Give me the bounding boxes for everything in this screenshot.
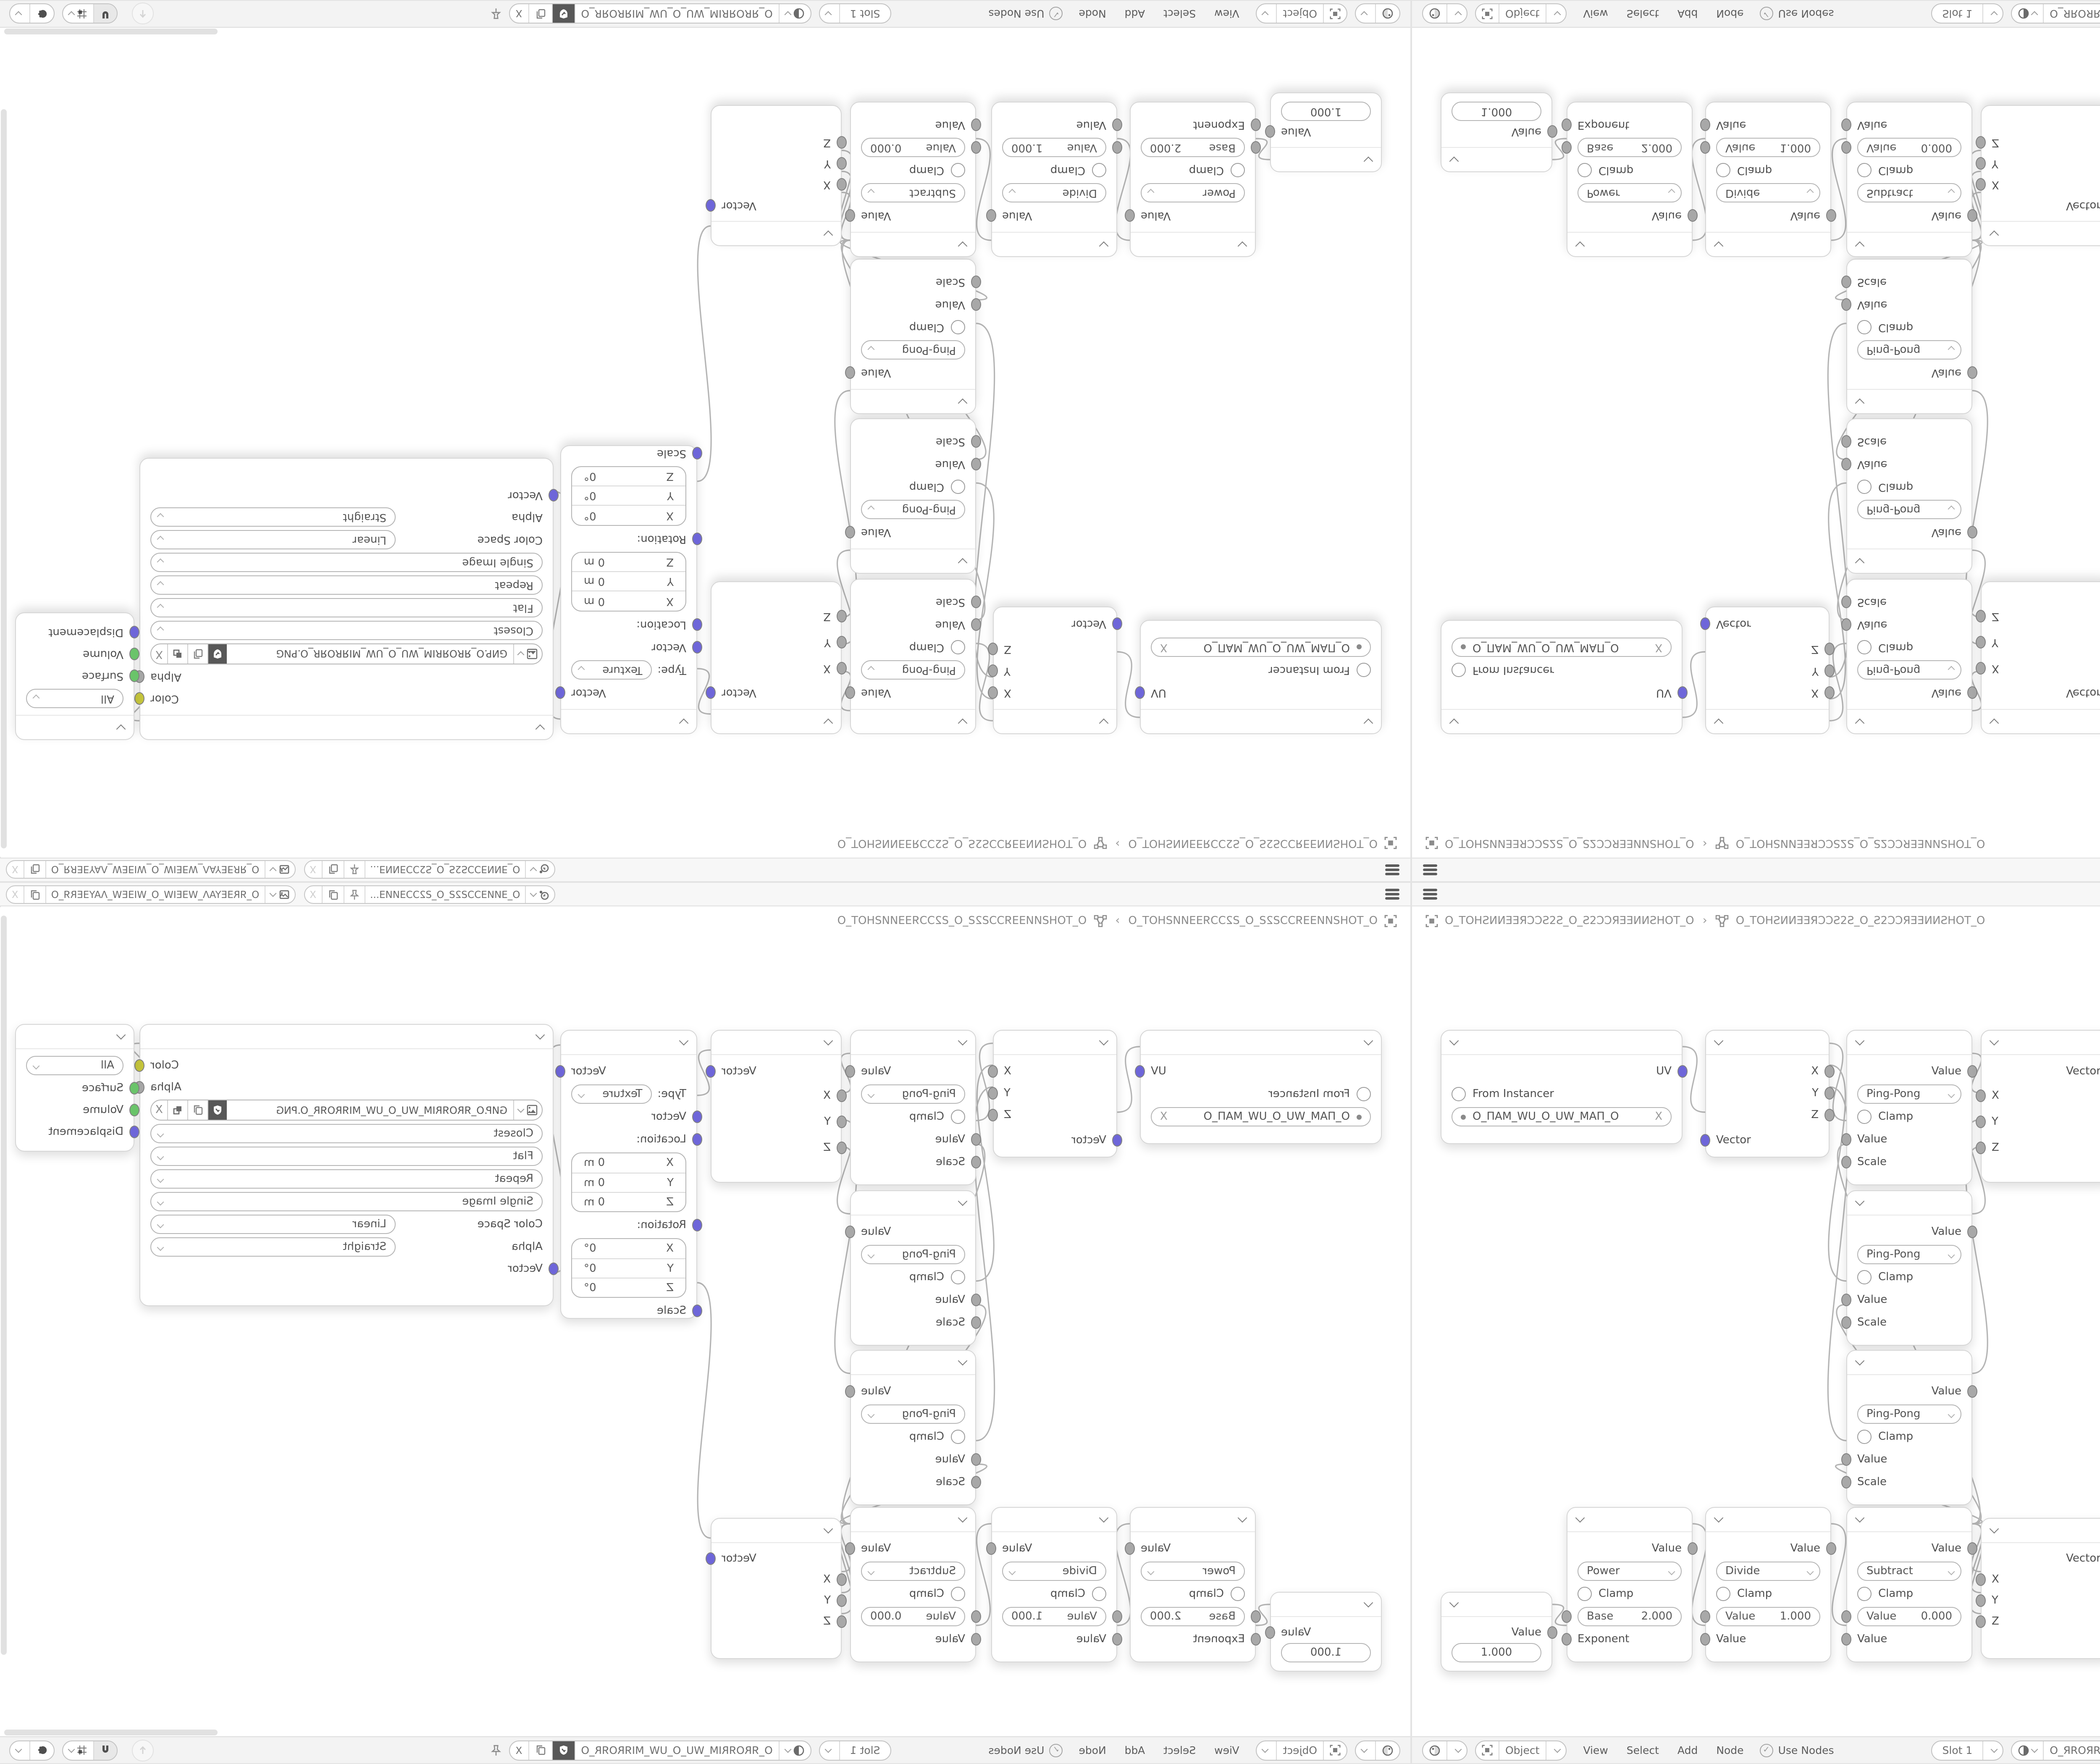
menu-add[interactable]: Add bbox=[1668, 8, 1707, 20]
base-field[interactable]: Base2.000 bbox=[1141, 138, 1245, 157]
use-nodes-toggle[interactable]: ✓ Use Nodes bbox=[1760, 1743, 1834, 1757]
socket-vector-input[interactable] bbox=[1112, 1134, 1122, 1147]
overlay-toggle-button[interactable] bbox=[132, 3, 154, 25]
node-header[interactable] bbox=[16, 715, 134, 739]
interpolation-dropdown[interactable]: Closest bbox=[150, 1124, 543, 1143]
node-header[interactable] bbox=[992, 232, 1116, 256]
node-math-pingpong-3[interactable]: Value Ping-Pong Clamp Value Scale bbox=[850, 1350, 976, 1505]
hamburger-menu-icon[interactable] bbox=[1385, 864, 1399, 875]
socket-z-input[interactable] bbox=[837, 610, 847, 622]
node-material-output[interactable]: All Surface Volume Displacement bbox=[15, 1024, 134, 1152]
socket-exponent-input[interactable] bbox=[1562, 118, 1572, 131]
node-separate-xyz[interactable]: X Y Z Vector bbox=[1705, 1030, 1830, 1158]
socket-x-input[interactable] bbox=[837, 1573, 847, 1586]
image-icon[interactable] bbox=[513, 644, 542, 664]
alpha-mode-dropdown[interactable]: Straight bbox=[150, 1237, 396, 1257]
image-icon[interactable] bbox=[513, 1100, 542, 1120]
socket-color-output[interactable] bbox=[134, 693, 144, 705]
socket-value-output[interactable] bbox=[845, 686, 855, 699]
shader-type-dropdown[interactable]: Object bbox=[1475, 4, 1566, 24]
socket-x-input[interactable] bbox=[837, 178, 847, 191]
clamp-checkbox[interactable] bbox=[951, 640, 965, 654]
value-field[interactable]: Value0.000 bbox=[861, 138, 965, 157]
socket-y-input[interactable] bbox=[1976, 1594, 1986, 1607]
scene-icon[interactable] bbox=[525, 886, 554, 903]
operation-dropdown[interactable]: Ping-Pong bbox=[1857, 340, 1961, 360]
axis-value[interactable]: 0 m bbox=[584, 1157, 605, 1169]
node-math-pingpong-3[interactable]: Value Ping-Pong Clamp Value Scale bbox=[1846, 259, 1972, 414]
socket-scale-input[interactable] bbox=[971, 596, 981, 608]
clamp-checkbox[interactable] bbox=[951, 1587, 965, 1601]
socket-base-input[interactable] bbox=[1251, 141, 1261, 154]
operation-dropdown[interactable]: Divide bbox=[1716, 1562, 1820, 1581]
overlap-circles-icon[interactable] bbox=[29, 5, 54, 23]
clear-x-button[interactable]: X bbox=[151, 1100, 167, 1120]
node-header[interactable] bbox=[1847, 709, 1971, 733]
socket-value1-input[interactable] bbox=[1841, 1610, 1851, 1623]
socket-value-output[interactable] bbox=[986, 1542, 996, 1555]
socket-value1-input[interactable] bbox=[1841, 141, 1851, 154]
menu-view[interactable]: View bbox=[1205, 8, 1248, 20]
axis-value[interactable]: 0 m bbox=[584, 556, 605, 568]
socket-x-output[interactable] bbox=[1824, 687, 1835, 699]
socket-uv-output[interactable] bbox=[1135, 686, 1145, 699]
scene-name[interactable]: O_ƎИИƎƆƆƧ2Ƨ_O_Ƨ2ƆƆƎИИƎ... bbox=[364, 861, 525, 878]
socket-location-input[interactable] bbox=[692, 1133, 702, 1146]
socket-displacement-input[interactable] bbox=[129, 1125, 139, 1138]
operation-dropdown[interactable]: Ping-Pong bbox=[861, 1084, 965, 1104]
node-combine-xyz-2[interactable]: Vector X Y Z bbox=[1981, 105, 2100, 246]
node-separate-xyz[interactable]: X Y Z Vector bbox=[1705, 606, 1830, 734]
node-header[interactable] bbox=[851, 1031, 975, 1055]
node-combine-xyz-1[interactable]: Vector X Y Z bbox=[711, 1030, 842, 1183]
shader-node-editor[interactable]: O_TOHƧИИƎƎЯƆƆƧ2Ƨ_O_Ƨ2ƆƆЯƎƎИИƧHOT_O › O_T… bbox=[0, 907, 1410, 1738]
node-header[interactable] bbox=[1847, 1351, 1971, 1375]
socket-value-input[interactable] bbox=[971, 1453, 981, 1466]
node-separate-xyz[interactable]: X Y Z Vector bbox=[993, 1030, 1117, 1158]
node-mapping[interactable]: Vector Type:Texture Vector Location: X0 … bbox=[560, 445, 697, 734]
copy-icon[interactable] bbox=[528, 5, 551, 23]
node-header[interactable] bbox=[1441, 1031, 1682, 1055]
socket-z-input[interactable] bbox=[1976, 610, 1986, 622]
socket-y-input[interactable] bbox=[837, 157, 847, 170]
breadcrumb-material[interactable]: O_TOHƧИИƎƎЯƆƆƧ2Ƨ_O_Ƨ2ƆƆЯƎƎИИƧHOT_O bbox=[1736, 914, 1985, 927]
socket-scale-input[interactable] bbox=[1841, 276, 1851, 288]
rotation-fields[interactable]: X0° Y0° Z0° bbox=[571, 466, 686, 526]
menu-view[interactable]: View bbox=[1574, 8, 1617, 20]
magnet-icon[interactable] bbox=[93, 1741, 117, 1759]
node-math-divide[interactable]: Value Divide Clamp Value1.000 Value bbox=[1705, 1507, 1831, 1662]
hamburger-menu-icon[interactable] bbox=[1385, 889, 1399, 900]
node-header[interactable] bbox=[1706, 232, 1830, 256]
socket-displacement-input[interactable] bbox=[129, 626, 139, 639]
view-layer-name[interactable]: O_ЯRƎEYAΛ_WƎEIW_O_WIƎEW_ΛAYƎERЯ_O bbox=[45, 886, 265, 903]
vertical-scrollbar[interactable] bbox=[1, 109, 7, 848]
node-header[interactable] bbox=[1847, 232, 1971, 256]
socket-scale-input[interactable] bbox=[971, 1476, 981, 1488]
socket-vector-input[interactable] bbox=[549, 1262, 559, 1275]
clamp-checkbox[interactable] bbox=[1857, 1110, 1872, 1124]
node-header[interactable] bbox=[851, 1508, 975, 1532]
value-field[interactable]: 1.000 bbox=[1452, 1643, 1541, 1662]
unlink-button[interactable]: X bbox=[7, 886, 24, 903]
node-header[interactable] bbox=[1441, 147, 1551, 171]
breadcrumb-material[interactable]: O_TOHƧИИƎƎЯƆƆƧ2Ƨ_O_Ƨ2ƆƆЯƎƎИИƧHOT_O bbox=[1736, 837, 1985, 850]
target-dropdown[interactable]: All bbox=[26, 1056, 123, 1075]
value-field[interactable]: Value1.000 bbox=[1716, 138, 1820, 157]
socket-scale-input[interactable] bbox=[971, 1156, 981, 1168]
editor-type-selector[interactable] bbox=[1422, 4, 1467, 24]
node-value[interactable]: Value 1.000 bbox=[1270, 1592, 1382, 1672]
axis-value[interactable]: 0° bbox=[584, 1242, 596, 1255]
socket-z-output[interactable] bbox=[988, 1108, 998, 1121]
color-space-dropdown[interactable]: Linear bbox=[150, 1215, 396, 1234]
horizontal-scrollbar[interactable] bbox=[4, 1730, 218, 1735]
socket-location-input[interactable] bbox=[692, 618, 702, 631]
socket-value-input[interactable] bbox=[1841, 1133, 1851, 1146]
socket-z-input[interactable] bbox=[1976, 1615, 1986, 1628]
socket-value-input[interactable] bbox=[971, 1294, 981, 1306]
material-selector[interactable]: O_ЯROЯRIM_WU_O_UW_MIЯROЯR_O X bbox=[509, 1740, 811, 1760]
node-math-divide[interactable]: Value Divide Clamp Value1.000 Value bbox=[991, 1507, 1117, 1662]
slot-dropdown[interactable]: Slot 1 bbox=[1932, 4, 2004, 24]
node-math-pingpong-2[interactable]: Value Ping-Pong Clamp Value Scale bbox=[850, 1190, 976, 1346]
fake-user-shield-button[interactable] bbox=[207, 1100, 227, 1120]
socket-x-output[interactable] bbox=[988, 687, 998, 699]
socket-value2-input[interactable] bbox=[1700, 1633, 1710, 1646]
menu-add[interactable]: Add bbox=[1668, 1744, 1707, 1756]
node-header[interactable] bbox=[994, 709, 1116, 733]
use-nodes-toggle[interactable]: ✓ Use Nodes bbox=[1760, 7, 1834, 21]
socket-scale-input[interactable] bbox=[1841, 435, 1851, 448]
socket-value-output[interactable] bbox=[1826, 209, 1836, 222]
socket-value-output[interactable] bbox=[1688, 209, 1698, 222]
socket-y-output[interactable] bbox=[1824, 665, 1835, 677]
node-math-subtract[interactable]: Value Subtract Clamp Value0.000 Value bbox=[1846, 1507, 1972, 1662]
socket-scale-input[interactable] bbox=[1841, 1476, 1851, 1488]
socket-y-input[interactable] bbox=[837, 636, 847, 648]
slot-dropdown[interactable]: Slot 1 bbox=[1932, 1740, 2004, 1760]
unlink-x-button[interactable]: X bbox=[510, 1741, 528, 1759]
socket-vector-output[interactable] bbox=[706, 1552, 716, 1565]
operation-dropdown[interactable]: Subtract bbox=[861, 183, 965, 202]
socket-rotation-input[interactable] bbox=[692, 1219, 702, 1231]
socket-value2-input[interactable] bbox=[1112, 1633, 1122, 1646]
socket-value-output[interactable] bbox=[1125, 1542, 1135, 1555]
axis-value[interactable]: 0° bbox=[584, 470, 596, 483]
node-header[interactable] bbox=[1847, 549, 1971, 573]
pin-icon[interactable] bbox=[491, 8, 501, 20]
material-selector[interactable]: O_ЯROЯRIM_WU_O_UW_MIЯROЯR_O X bbox=[2011, 1740, 2100, 1760]
alpha-mode-dropdown[interactable]: Straight bbox=[150, 507, 396, 527]
socket-scale-input[interactable] bbox=[1841, 596, 1851, 608]
source-dropdown[interactable]: Single Image bbox=[150, 1192, 543, 1211]
socket-value-input[interactable] bbox=[1841, 1453, 1851, 1466]
clamp-checkbox[interactable] bbox=[951, 1110, 965, 1124]
node-math-pingpong-2[interactable]: Value Ping-Pong Clamp Value Scale bbox=[1846, 418, 1972, 574]
copy-icon[interactable] bbox=[528, 1741, 551, 1759]
node-header[interactable] bbox=[16, 1025, 134, 1049]
socket-y-output[interactable] bbox=[988, 1087, 998, 1099]
node-header[interactable] bbox=[140, 1025, 553, 1049]
menu-select[interactable]: Select bbox=[1617, 1744, 1668, 1756]
socket-value1-input[interactable] bbox=[1700, 141, 1710, 154]
clamp-checkbox[interactable] bbox=[951, 1270, 965, 1284]
node-math-pingpong-2[interactable]: Value Ping-Pong Clamp Value Scale bbox=[850, 418, 976, 574]
clear-x-button[interactable]: X bbox=[1160, 641, 1168, 654]
slot-dropdown[interactable]: Slot 1 bbox=[819, 1740, 891, 1760]
socket-base-input[interactable] bbox=[1562, 1610, 1572, 1623]
axis-value[interactable]: 0 m bbox=[584, 575, 605, 588]
operation-dropdown[interactable]: Ping-Pong bbox=[861, 660, 965, 680]
breadcrumb-object[interactable]: O_TOHƧИИƎƎЯƆƆƧ2Ƨ_O_Ƨ2ƆƆЯƎƎИИƧHOT_O bbox=[1128, 837, 1378, 850]
socket-vector-input[interactable] bbox=[692, 1110, 702, 1123]
socket-scale-input[interactable] bbox=[971, 1316, 981, 1329]
clamp-checkbox[interactable] bbox=[951, 320, 965, 334]
node-header[interactable] bbox=[1567, 232, 1692, 256]
target-dropdown[interactable]: All bbox=[26, 689, 123, 708]
socket-value-input[interactable] bbox=[971, 618, 981, 631]
node-header[interactable] bbox=[1141, 1031, 1381, 1055]
view-layer-icon[interactable] bbox=[264, 861, 294, 878]
node-header[interactable] bbox=[711, 221, 841, 245]
socket-scale-input[interactable] bbox=[971, 435, 981, 448]
clear-x-button[interactable]: X bbox=[1655, 641, 1662, 654]
socket-value1-input[interactable] bbox=[1112, 141, 1122, 154]
socket-scale-input[interactable] bbox=[1841, 1316, 1851, 1329]
clamp-checkbox[interactable] bbox=[1092, 1587, 1106, 1601]
menu-node[interactable]: Node bbox=[1069, 1744, 1115, 1756]
fake-user-shield-button[interactable] bbox=[551, 5, 574, 23]
slot-dropdown[interactable]: Slot 1 bbox=[819, 4, 891, 24]
node-header[interactable] bbox=[711, 709, 841, 733]
node-header[interactable] bbox=[851, 389, 975, 413]
socket-volume-input[interactable] bbox=[129, 1103, 139, 1116]
magnet-icon[interactable] bbox=[93, 5, 117, 23]
source-dropdown[interactable]: Single Image bbox=[150, 553, 543, 572]
value-field[interactable]: 1.000 bbox=[1281, 1643, 1371, 1662]
node-math-subtract[interactable]: Value Subtract Clamp Value0.000 Value bbox=[1846, 102, 1972, 257]
clamp-checkbox[interactable] bbox=[951, 480, 965, 494]
node-math-power[interactable]: Value Power Clamp Base2.000 Exponent bbox=[1567, 102, 1693, 257]
socket-value-output[interactable] bbox=[845, 209, 855, 222]
clamp-checkbox[interactable] bbox=[951, 1430, 965, 1444]
node-separate-xyz[interactable]: X Y Z Vector bbox=[993, 606, 1117, 734]
socket-exponent-input[interactable] bbox=[1251, 1633, 1261, 1646]
menu-node[interactable]: Node bbox=[1707, 8, 1753, 20]
socket-vector-input[interactable] bbox=[1700, 1134, 1710, 1147]
socket-value2-input[interactable] bbox=[1700, 118, 1710, 131]
node-combine-xyz-1[interactable]: Vector X Y Z bbox=[1981, 581, 2100, 734]
socket-z-input[interactable] bbox=[837, 136, 847, 149]
rotation-fields[interactable]: X0° Y0° Z0° bbox=[571, 1238, 686, 1298]
operation-dropdown[interactable]: Power bbox=[1578, 1562, 1682, 1581]
socket-scale-input[interactable] bbox=[692, 447, 702, 459]
view-layer-selector[interactable]: O_ЯRƎEYAΛ_WƎEIW_O_WIƎEW_ΛAYƎERЯ_O X bbox=[6, 885, 295, 904]
menu-select[interactable]: Select bbox=[1617, 8, 1668, 20]
socket-exponent-input[interactable] bbox=[1562, 1633, 1572, 1646]
clamp-checkbox[interactable] bbox=[1857, 1587, 1872, 1601]
proportional-edit-controls[interactable] bbox=[9, 1740, 55, 1760]
node-header[interactable] bbox=[1706, 1508, 1830, 1532]
uv-map-dropdown[interactable]: O_ПAM_WU_O_UW_MAП_OX bbox=[1452, 638, 1672, 657]
mapping-type-dropdown[interactable]: Texture bbox=[571, 660, 652, 680]
new-copy-icon[interactable] bbox=[321, 861, 343, 878]
operation-dropdown[interactable]: Ping-Pong bbox=[1857, 660, 1961, 680]
node-header[interactable] bbox=[1847, 1191, 1971, 1215]
operation-dropdown[interactable]: Ping-Pong bbox=[1857, 1084, 1961, 1104]
node-header[interactable] bbox=[1706, 1031, 1829, 1055]
socket-value-output[interactable] bbox=[845, 366, 855, 379]
value-field[interactable]: Value0.000 bbox=[861, 1607, 965, 1626]
node-material-output[interactable]: All Surface Volume Displacement bbox=[15, 612, 134, 740]
from-instancer-checkbox[interactable] bbox=[1357, 663, 1371, 677]
socket-value-input[interactable] bbox=[971, 298, 981, 311]
clamp-checkbox[interactable] bbox=[1716, 163, 1730, 177]
node-header[interactable] bbox=[1982, 1519, 2100, 1543]
clamp-checkbox[interactable] bbox=[1578, 163, 1592, 177]
image-selector[interactable]: GИP.O_ЯROЯRIM_WU_O_UW_MIЯROЯR_O.PNG X bbox=[150, 643, 543, 664]
node-uv-map[interactable]: UV From Instancer O_ПAM_WU_O_UW_MAП_OX bbox=[1140, 1030, 1382, 1144]
socket-x-input[interactable] bbox=[837, 1089, 847, 1102]
node-image-texture[interactable]: Color Alpha GИP.O_ЯROЯRIM_WU_O_UW_MIЯROЯ… bbox=[139, 458, 554, 740]
node-math-power[interactable]: Value Power Clamp Base2.000 Exponent bbox=[1567, 1507, 1693, 1662]
pin-icon[interactable] bbox=[343, 861, 364, 878]
socket-vector-input[interactable] bbox=[1700, 617, 1710, 630]
value-field[interactable]: Value1.000 bbox=[1716, 1607, 1820, 1626]
node-header[interactable] bbox=[851, 1191, 975, 1215]
socket-value-output[interactable] bbox=[845, 1065, 855, 1078]
socket-value1-input[interactable] bbox=[971, 1610, 981, 1623]
socket-z-output[interactable] bbox=[1824, 643, 1835, 656]
node-combine-xyz-2[interactable]: Vector X Y Z bbox=[711, 1518, 842, 1659]
operation-dropdown[interactable]: Ping-Pong bbox=[861, 500, 965, 519]
socket-y-input[interactable] bbox=[837, 1594, 847, 1607]
copy-icon[interactable] bbox=[24, 886, 45, 903]
socket-value-output[interactable] bbox=[1826, 1542, 1836, 1555]
view-layer-name[interactable]: O_ЯRƎEYAΛ_WƎEIW_O_WIƎEW_ΛAYƎERЯ_O bbox=[45, 861, 265, 878]
node-header[interactable] bbox=[851, 549, 975, 573]
node-header[interactable] bbox=[851, 1351, 975, 1375]
extension-dropdown[interactable]: Repeat bbox=[150, 575, 543, 595]
axis-value[interactable]: 0° bbox=[584, 489, 596, 502]
socket-vector-input[interactable] bbox=[549, 489, 559, 502]
clamp-checkbox[interactable] bbox=[1716, 1587, 1730, 1601]
socket-value-output[interactable] bbox=[1688, 1542, 1698, 1555]
node-header[interactable] bbox=[1271, 1593, 1381, 1617]
clamp-checkbox[interactable] bbox=[1578, 1587, 1592, 1601]
projection-dropdown[interactable]: Flat bbox=[150, 1147, 543, 1166]
node-math-pingpong-1[interactable]: Value Ping-Pong Clamp Value Scale bbox=[1846, 579, 1972, 734]
value-field[interactable]: Value1.000 bbox=[1002, 1607, 1106, 1626]
view-layer-icon[interactable] bbox=[264, 886, 294, 903]
socket-x-output[interactable] bbox=[988, 1065, 998, 1077]
image-filename[interactable]: GИP.O_ЯROЯRIM_WU_O_UW_MIЯROЯR_O.PNG bbox=[227, 1104, 513, 1116]
socket-base-input[interactable] bbox=[1562, 141, 1572, 154]
socket-scale-input[interactable] bbox=[1841, 1156, 1851, 1168]
copy-icon[interactable] bbox=[187, 1100, 207, 1120]
socket-vector-output[interactable] bbox=[706, 686, 716, 699]
node-header[interactable] bbox=[992, 1508, 1116, 1532]
projection-dropdown[interactable]: Flat bbox=[150, 598, 543, 617]
node-combine-xyz-2[interactable]: Vector X Y Z bbox=[711, 105, 842, 246]
node-uv-map[interactable]: UV From Instancer O_ПAM_WU_O_UW_MAП_OX bbox=[1140, 620, 1382, 734]
socket-value-input[interactable] bbox=[971, 458, 981, 470]
socket-value1-input[interactable] bbox=[1112, 1610, 1122, 1623]
scene-icon[interactable] bbox=[525, 861, 554, 878]
value-field[interactable]: 1.000 bbox=[1452, 102, 1541, 121]
pin-icon[interactable] bbox=[491, 1744, 501, 1756]
clamp-checkbox[interactable] bbox=[1857, 1270, 1872, 1284]
menu-select[interactable]: Select bbox=[1154, 8, 1205, 20]
snapping-controls[interactable] bbox=[62, 1740, 118, 1760]
operation-dropdown[interactable]: Power bbox=[1578, 183, 1682, 202]
clamp-checkbox[interactable] bbox=[1092, 163, 1106, 177]
node-header[interactable] bbox=[1847, 1031, 1971, 1055]
unlink-x-button[interactable]: X bbox=[510, 5, 528, 23]
breadcrumb-object[interactable]: O_TOHƧИИƎƎЯƆƆƧ2Ƨ_O_Ƨ2ƆƆЯƎƎИИƧHOT_O bbox=[1445, 837, 1694, 850]
node-header[interactable] bbox=[851, 709, 975, 733]
socket-value2-input[interactable] bbox=[1841, 1633, 1851, 1646]
breadcrumb-material[interactable]: O_TOHƧИИƎƎЯƆƆƧ2Ƨ_O_Ƨ2ƆƆЯƎƎИИƧHOT_O bbox=[837, 837, 1087, 850]
material-selector[interactable]: O_ЯROЯRIM_WU_O_UW_MIЯROЯR_O X bbox=[509, 4, 811, 24]
clamp-checkbox[interactable] bbox=[1231, 1587, 1245, 1601]
node-header[interactable] bbox=[711, 1519, 841, 1543]
socket-value-output[interactable] bbox=[845, 1226, 855, 1238]
hamburger-menu-icon[interactable] bbox=[1423, 889, 1437, 900]
socket-vector-input[interactable] bbox=[692, 641, 702, 654]
socket-vector-output[interactable] bbox=[706, 1065, 716, 1078]
socket-z-output[interactable] bbox=[1824, 1108, 1835, 1121]
menu-node[interactable]: Node bbox=[1069, 8, 1115, 20]
node-header[interactable] bbox=[1982, 221, 2100, 245]
socket-y-input[interactable] bbox=[1976, 1116, 1986, 1128]
node-header[interactable] bbox=[1847, 389, 1971, 413]
uv-map-dropdown[interactable]: O_ПAM_WU_O_UW_MAП_OX bbox=[1151, 1107, 1371, 1126]
socket-value-output[interactable] bbox=[1967, 1542, 1977, 1555]
socket-scale-input[interactable] bbox=[971, 276, 981, 288]
socket-uv-output[interactable] bbox=[1135, 1065, 1145, 1078]
operation-dropdown[interactable]: Divide bbox=[1002, 1562, 1106, 1581]
socket-value-output[interactable] bbox=[1967, 1385, 1977, 1398]
socket-value-output[interactable] bbox=[1265, 1626, 1275, 1638]
socket-value-output[interactable] bbox=[1967, 366, 1977, 379]
operation-dropdown[interactable]: Divide bbox=[1002, 183, 1106, 202]
node-header[interactable] bbox=[1706, 709, 1829, 733]
from-instancer-checkbox[interactable] bbox=[1357, 1087, 1371, 1101]
socket-x-input[interactable] bbox=[1976, 1573, 1986, 1586]
node-header[interactable] bbox=[1131, 232, 1255, 256]
socket-value-output[interactable] bbox=[1967, 209, 1977, 222]
value-field[interactable]: Value0.000 bbox=[1857, 1607, 1961, 1626]
node-header[interactable] bbox=[561, 1031, 696, 1055]
use-nodes-toggle[interactable]: ✓ Use Nodes bbox=[989, 1743, 1063, 1757]
operation-dropdown[interactable]: Power bbox=[1141, 1562, 1245, 1581]
shader-node-editor[interactable]: O_TOHƧИИƎƎЯƆƆƧ2Ƨ_O_Ƨ2ƆƆЯƎƎИИƧHOT_O › O_T… bbox=[0, 26, 1410, 857]
socket-y-output[interactable] bbox=[988, 665, 998, 677]
socket-z-input[interactable] bbox=[1976, 136, 1986, 149]
breadcrumb-object[interactable]: O_TOHƧИИƎƎЯƆƆƧ2Ƨ_O_Ƨ2ƆƆЯƎƎИИƧHOT_O bbox=[1128, 914, 1378, 927]
socket-vector-output[interactable] bbox=[706, 199, 716, 212]
clamp-checkbox[interactable] bbox=[1231, 163, 1245, 177]
menu-node[interactable]: Node bbox=[1707, 1744, 1753, 1756]
socket-value-output[interactable] bbox=[986, 209, 996, 222]
editor-type-selector[interactable] bbox=[1355, 1740, 1400, 1760]
node-math-pingpong-2[interactable]: Value Ping-Pong Clamp Value Scale bbox=[1846, 1190, 1972, 1346]
clamp-checkbox[interactable] bbox=[951, 163, 965, 177]
shader-node-editor[interactable]: O_TOHƧИИƎƎЯƆƆƧ2Ƨ_O_Ƨ2ƆƆЯƎƎИИƧHOT_O › O_T… bbox=[1412, 907, 2100, 1738]
stack-icon[interactable] bbox=[167, 1100, 187, 1120]
